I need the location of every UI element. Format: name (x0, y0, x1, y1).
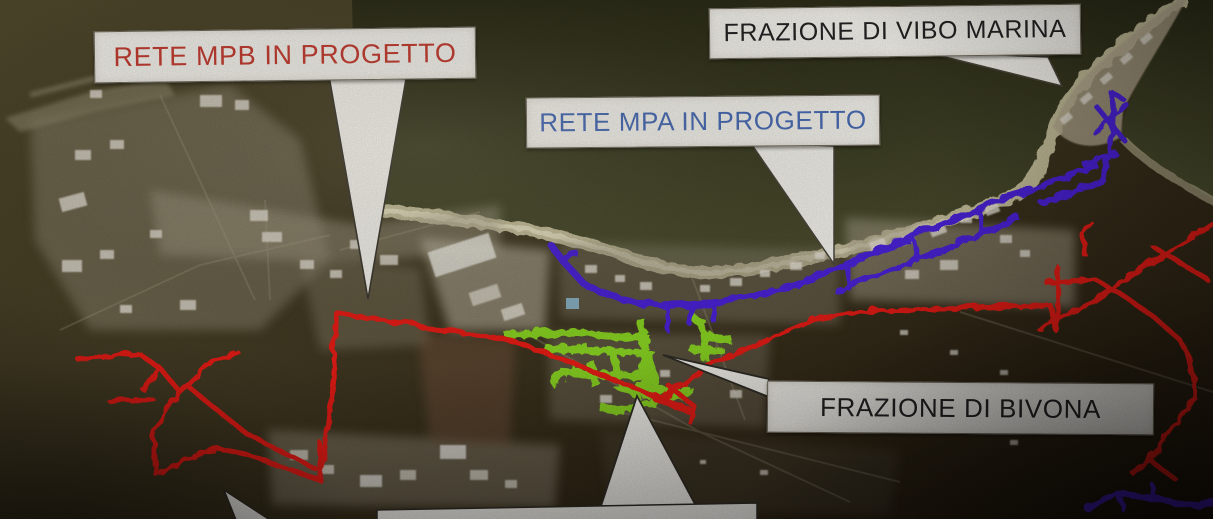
label-rete-mpb-text: RETE MPB IN PROGETTO (113, 37, 456, 72)
label-frazione-bivona-text: FRAZIONE DI BIVONA (820, 392, 1101, 425)
pool-dot (566, 298, 579, 309)
map-photo: RETE MPB IN PROGETTO RETE MPA IN PROGETT… (0, 0, 1213, 519)
label-rete-mpb: RETE MPB IN PROGETTO (94, 27, 477, 84)
label-rete-mpa-text: RETE MPA IN PROGETTO (539, 105, 867, 139)
label-frazione-vibo-marina: FRAZIONE DI VIBO MARINA (709, 4, 1082, 60)
label-frazione-bivona: FRAZIONE DI BIVONA (767, 381, 1154, 436)
label-rete-mpa: RETE MPA IN PROGETTO (526, 94, 880, 148)
label-frazione-vibo-marina-text: FRAZIONE DI VIBO MARINA (723, 15, 1066, 48)
